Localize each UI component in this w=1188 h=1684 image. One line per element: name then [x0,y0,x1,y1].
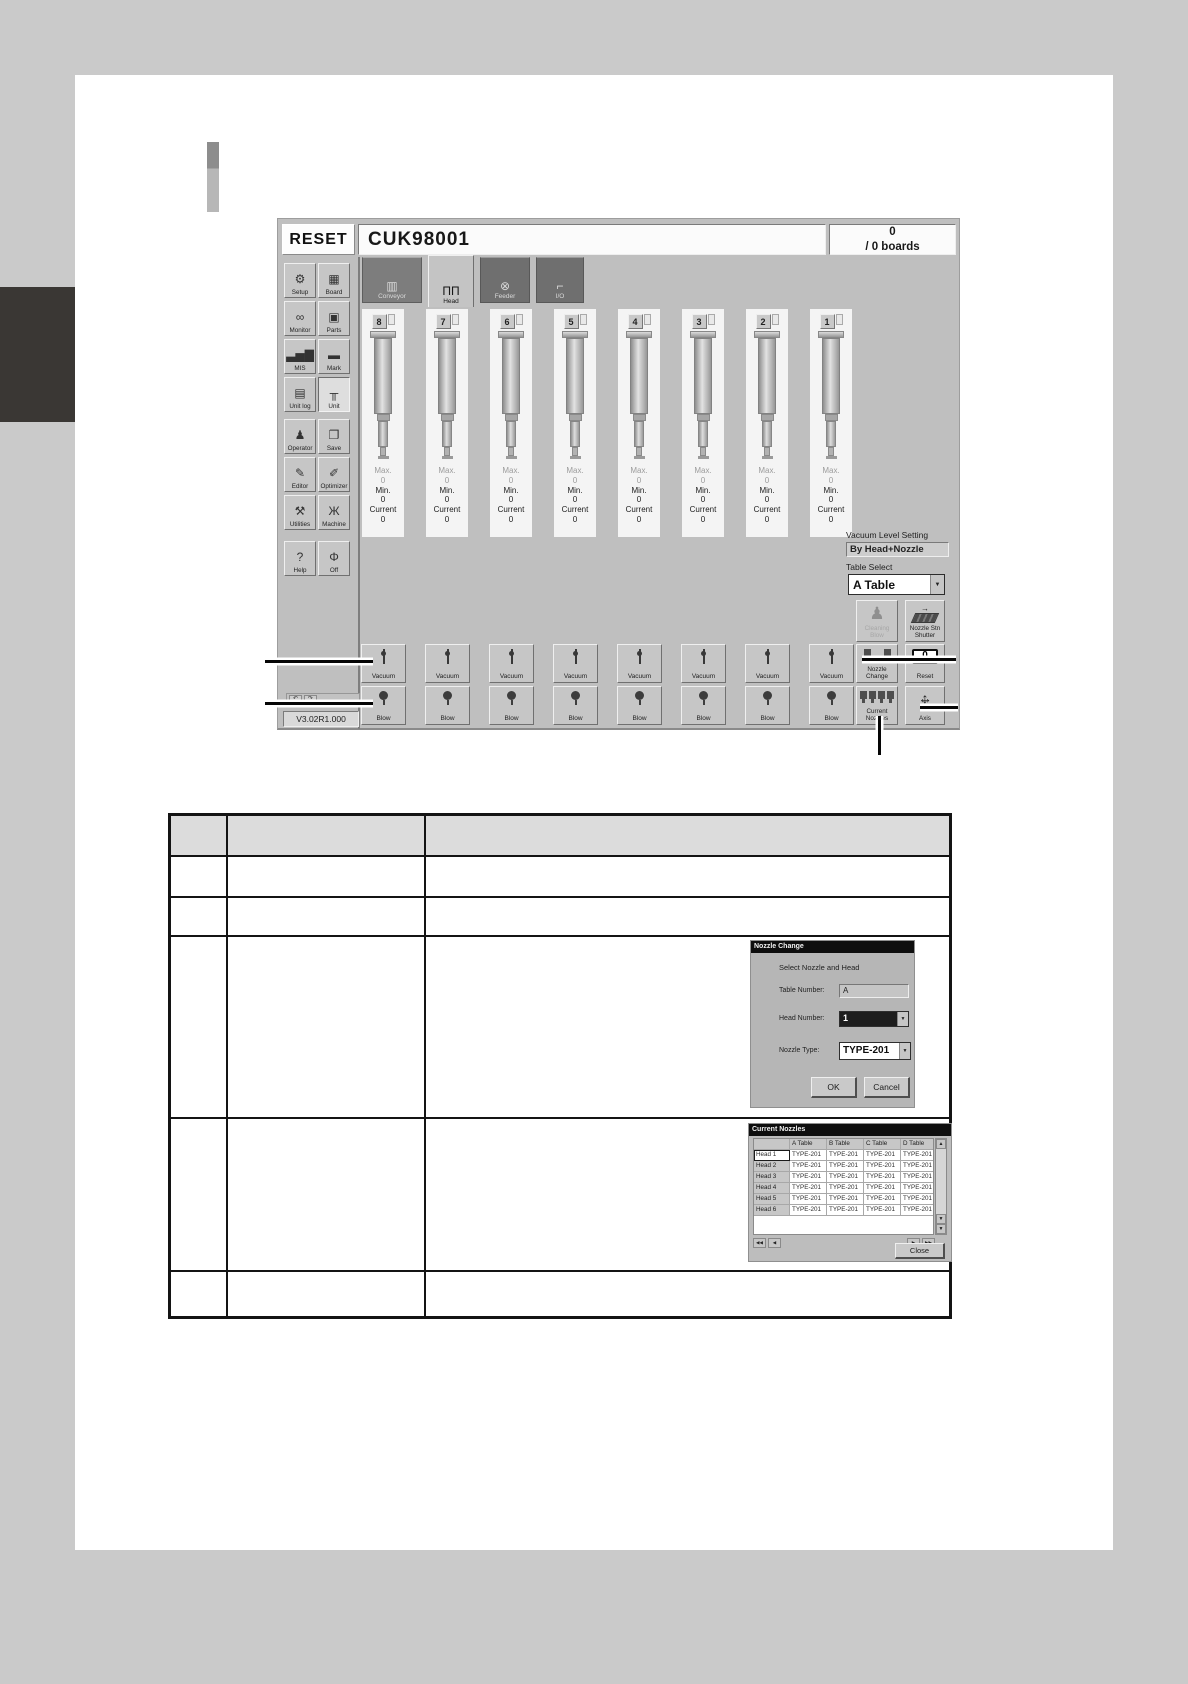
table-cell [228,1119,426,1270]
blow-label: Blow [824,715,838,722]
grid-cell[interactable]: TYPE-201 [864,1183,901,1194]
grid-cell[interactable]: TYPE-201 [827,1205,864,1216]
grid-cell[interactable]: TYPE-201 [827,1172,864,1183]
max-value: 0 [626,476,653,486]
parts-icon: ▣ [328,307,339,327]
blow-button-head-7[interactable]: Blow [425,686,470,725]
nozzle-stn-shutter-button[interactable]: → Nozzle Stn Shutter [905,600,945,642]
grid-cell[interactable]: TYPE-201 [901,1150,934,1161]
table-cell [228,1272,426,1316]
max-label: Max. [370,466,397,476]
vacuum-pin-icon [379,649,389,664]
sidebar-button-board[interactable]: ▦Board [318,263,350,298]
nozzle-change-icon: → [863,649,892,663]
grid-row-header[interactable]: Head 4 [754,1183,790,1194]
current-value: 0 [498,515,525,525]
max-value: 0 [434,476,461,486]
grid-cell[interactable]: TYPE-201 [790,1205,827,1216]
blow-balloon-icon [698,691,709,706]
scroll-left-icon[interactable]: ◀ [768,1238,781,1248]
vacuum-values: Max.0Min.0Current0 [626,466,653,525]
head-strip-1: 1Max.0Min.0Current0 [810,309,852,537]
vacuum-values: Max.0Min.0Current0 [690,466,717,525]
program-title: CUK98001 [358,224,826,255]
min-label: Min. [562,486,589,496]
blow-button-head-3[interactable]: Blow [681,686,726,725]
tab-label: Feeder [495,293,516,300]
cleaning-blow-button[interactable]: ♟ Cleaning Blow [856,600,898,642]
blow-button-head-2[interactable]: Blow [745,686,790,725]
grid-cell[interactable]: TYPE-201 [864,1150,901,1161]
nozzle-graphic [626,331,652,338]
grid-cell[interactable]: TYPE-201 [790,1161,827,1172]
sidebar-button-label: Setup [292,289,308,296]
table-header-row [171,816,949,855]
min-value: 0 [818,495,845,505]
vacuum-button-head-1[interactable]: Vacuum [809,644,854,683]
head-number-badge: 2 [756,314,771,329]
head-number-badge: 7 [436,314,451,329]
vacuum-values: Max.0Min.0Current0 [434,466,461,525]
table-select-dropdown[interactable]: A Table ▼ [848,574,945,595]
blow-balloon-icon [378,691,389,706]
grid-cell[interactable]: TYPE-201 [790,1172,827,1183]
grid-row-header[interactable]: Head 3 [754,1172,790,1183]
board-icon: ▦ [328,269,339,289]
current-value: 0 [818,515,845,525]
arrow-right-icon: → [921,605,929,613]
blow-button-head-4[interactable]: Blow [617,686,662,725]
sidebar-button-label: Monitor [290,327,311,334]
current-nozzles-grid: A TableB TableC TableD TableHead 1TYPE-2… [753,1138,934,1235]
table-cell [171,898,228,935]
max-label: Max. [754,466,781,476]
grid-row: Head 1TYPE-201TYPE-201TYPE-201TYPE-201 [754,1150,933,1161]
sidebar-button-unit[interactable]: ╥Unit [318,377,350,412]
min-label: Min. [434,486,461,496]
grid-row: Head 6TYPE-201TYPE-201TYPE-201TYPE-201 [754,1205,933,1216]
grid-header-row: A TableB TableC TableD Table [754,1139,933,1150]
sidebar-button-editor[interactable]: ✎Editor [284,457,316,492]
current-label: Current [434,505,461,515]
grid-cell[interactable]: TYPE-201 [901,1194,934,1205]
current-value: 0 [370,515,397,525]
grid-cell[interactable]: TYPE-201 [864,1161,901,1172]
min-label: Min. [690,486,717,496]
vacuum-level-setting-label: Vacuum Level Setting [846,530,928,540]
grid-row-header[interactable]: Head 6 [754,1205,790,1216]
current-value: 0 [434,515,461,525]
grid-corner-cell [754,1139,790,1150]
current-label: Current [370,505,397,515]
tab-label: Conveyor [378,293,406,300]
nozzle-graphic [434,331,460,338]
vacuum-label: Vacuum [820,673,843,680]
blow-button-head-8[interactable]: Blow [361,686,406,725]
table-cell [426,898,949,935]
sidebar-button-label: Machine [322,521,346,528]
sidebar-button-label: Utilities [290,521,310,528]
min-label: Min. [754,486,781,496]
scroll-end-icon[interactable]: ▼ [936,1224,946,1234]
grid-column-header: D Table [901,1139,934,1150]
head-number-value: 1 [840,1012,897,1026]
sidebar-button-label: Mark [327,365,341,372]
nozzle-change-dialog: Nozzle Change Select Nozzle and Head Tab… [750,940,915,1108]
close-button[interactable]: Close [895,1243,945,1259]
blow-button-head-1[interactable]: Blow [809,686,854,725]
vacuum-pin-icon [507,649,517,664]
table-cell [228,898,426,935]
grid-row-header[interactable]: Head 5 [754,1194,790,1205]
nozzle-stn-shutter-label: Nozzle Stn Shutter [906,625,944,639]
blow-balloon-icon [570,691,581,706]
head-number-dropdown[interactable]: 1 ▼ [839,1011,909,1027]
head-number-badge: 8 [372,314,387,329]
vacuum-button-head-6[interactable]: Vacuum [489,644,534,683]
current-nozzles-button[interactable]: Current Nozzles [856,686,898,725]
vacuum-values: Max.0Min.0Current0 [818,466,845,525]
current-nozzles-label: Current Nozzles [857,708,897,722]
blow-label: Blow [760,715,774,722]
sidebar-button-label: Off [330,567,338,574]
current-value: 0 [754,515,781,525]
blow-balloon-icon [442,691,453,706]
max-label: Max. [818,466,845,476]
head-number-label: Head Number: [779,1015,825,1022]
grid-cell[interactable]: TYPE-201 [827,1150,864,1161]
grid-row-header[interactable]: Head 1 [754,1150,790,1161]
vacuum-pin-icon [571,649,581,664]
sidebar-button-label: Help [294,567,307,574]
current-label: Current [562,505,589,515]
vacuum-label: Vacuum [692,673,715,680]
sidebar-button-label: Save [327,445,341,452]
grid-cell[interactable]: TYPE-201 [901,1183,934,1194]
tab-i-o[interactable]: ⌐I/O [536,257,584,303]
grid-cell[interactable]: TYPE-201 [790,1183,827,1194]
operator-icon: ♟ [295,425,306,445]
grid-row: Head 2TYPE-201TYPE-201TYPE-201TYPE-201 [754,1161,933,1172]
unit-icon: ╥ [330,383,339,403]
sidebar-button-utilities[interactable]: ⚒Utilities [284,495,316,530]
vacuum-label: Vacuum [564,673,587,680]
setup-icon: ⚙ [295,269,306,289]
max-label: Max. [626,466,653,476]
ok-button[interactable]: OK [811,1077,857,1098]
nozzle-graphic [370,331,396,338]
grid-cell[interactable]: TYPE-201 [901,1172,934,1183]
grid-row: Head 4TYPE-201TYPE-201TYPE-201TYPE-201 [754,1183,933,1194]
table-header-cell [426,816,949,855]
nozzle-change-button[interactable]: → Nozzle Change [856,644,898,683]
vacuum-label: Vacuum [372,673,395,680]
sidebar-button-off[interactable]: ΦOff [318,541,350,576]
table-cell [426,857,949,896]
sidebar-button-save[interactable]: ❐Save [318,419,350,454]
save-icon: ❐ [329,425,340,445]
max-label: Max. [498,466,525,476]
nozzle-graphic [690,331,716,338]
vacuum-values: Max.0Min.0Current0 [498,466,525,525]
scroll-up-icon[interactable]: ▲ [936,1139,946,1149]
mis-icon: ▃▅▇ [286,345,314,365]
nozzle-change-label: Nozzle Change [857,666,897,680]
min-label: Min. [498,486,525,496]
table-number-field: A [839,984,909,998]
tab-label: Head [443,298,459,305]
operator-silhouette-icon: ♟ [869,605,884,623]
min-label: Min. [370,486,397,496]
min-value: 0 [562,495,589,505]
document-page: RESET CUK98001 0 / 0 boards ⚙Setup▦Board… [0,0,1188,1684]
axis-label: Axis [919,715,931,722]
sidebar-button-parts[interactable]: ▣Parts [318,301,350,336]
machine-ui-screenshot: RESET CUK98001 0 / 0 boards ⚙Setup▦Board… [277,218,960,730]
grid-column-header: C Table [864,1139,901,1150]
window-titlebar: Current Nozzles [749,1124,951,1136]
table-cell [228,937,426,1117]
shutter-icon: → [913,605,937,623]
help-icon: ? [297,547,304,567]
blow-label: Blow [376,715,390,722]
vacuum-pin-icon [443,649,453,664]
software-version: V3.02R1.000 [283,711,359,727]
min-label: Min. [626,486,653,496]
vacuum-values: Max.0Min.0Current0 [754,466,781,525]
nozzle-graphic [818,331,844,338]
sidebar-button-label: Unit log [289,403,310,410]
current-label: Current [818,505,845,515]
head-strip-3: 3Max.0Min.0Current0 [682,309,724,537]
table-cell [171,937,228,1117]
vacuum-button-head-3[interactable]: Vacuum [681,644,726,683]
nozzle-type-value: TYPE-201 [840,1043,899,1059]
utilities-icon: ⚒ [295,501,306,521]
tab-head[interactable]: ΠΠHead [428,255,474,307]
table-select-value: A Table [849,578,930,592]
max-value: 0 [370,476,397,486]
vacuum-values: Max.0Min.0Current0 [562,466,589,525]
vertical-scrollbar[interactable]: ▲ ▼ ▼ [935,1138,947,1235]
editor-icon: ✎ [295,463,305,483]
table-cell [171,857,228,896]
min-value: 0 [434,495,461,505]
table-number-label: Table Number: [779,987,825,994]
head-number-badge: 3 [692,314,707,329]
chevron-down-icon[interactable]: ▼ [899,1043,910,1059]
blow-label: Blow [696,715,710,722]
max-value: 0 [818,476,845,486]
table-row [171,855,949,896]
min-value: 0 [626,495,653,505]
max-label: Max. [690,466,717,476]
grid-column-header: B Table [827,1139,864,1150]
tab-feeder[interactable]: ⊗Feeder [480,257,530,303]
chevron-down-icon[interactable]: ▼ [930,575,944,594]
grid-cell[interactable]: TYPE-201 [827,1183,864,1194]
unit-log-icon: ▤ [294,383,305,403]
grid-cell[interactable]: TYPE-201 [864,1172,901,1183]
max-label: Max. [434,466,461,476]
cleaning-blow-label: Cleaning Blow [857,625,897,639]
head-icon: ΠΠ [442,284,459,298]
min-label: Min. [818,486,845,496]
nozzle-graphic [754,331,780,338]
max-value: 0 [562,476,589,486]
head-number-badge: 6 [500,314,515,329]
scroll-down-icon[interactable]: ▼ [936,1214,946,1224]
sidebar-button-label: Optimizer [321,483,348,490]
blow-label: Blow [632,715,646,722]
sidebar-button-machine[interactable]: ЖMachine [318,495,350,530]
dialog-subtitle: Select Nozzle and Head [779,963,859,972]
vacuum-level-setting-value: By Head+Nozzle [846,542,949,557]
blow-balloon-icon [826,691,837,706]
vacuum-pin-icon [763,649,773,664]
tab-conveyor[interactable]: ▥Conveyor [362,257,422,303]
head-strip-7: 7Max.0Min.0Current0 [426,309,468,537]
grid-cell[interactable]: TYPE-201 [827,1161,864,1172]
table-row [171,1270,949,1316]
cancel-button[interactable]: Cancel [864,1077,910,1098]
table-cell [228,857,426,896]
vacuum-button-head-8[interactable]: Vacuum [361,644,406,683]
table-cell [171,1119,228,1270]
sidebar-button-label: Editor [292,483,308,490]
current-label: Current [498,505,525,515]
reset-button[interactable]: RESET [282,224,355,255]
current-label: Current [754,505,781,515]
sidebar-button-operator[interactable]: ♟Operator [284,419,316,454]
vacuum-button-head-5[interactable]: Vacuum [553,644,598,683]
head-number-badge: 4 [628,314,643,329]
min-value: 0 [754,495,781,505]
mark-icon: ▬ [328,345,340,365]
min-value: 0 [498,495,525,505]
blow-button-head-5[interactable]: Blow [553,686,598,725]
vacuum-button-head-4[interactable]: Vacuum [617,644,662,683]
table-header-cell [171,816,228,855]
vacuum-label: Vacuum [756,673,779,680]
optimizer-icon: ✐ [329,463,339,483]
chevron-down-icon[interactable]: ▼ [897,1012,908,1026]
io-icon: ⌐ [556,279,563,293]
grid-cell[interactable]: TYPE-201 [790,1150,827,1161]
table-cell [426,1272,949,1316]
callout-line-nozzle-change [862,658,956,661]
head-number-badge: 1 [820,314,835,329]
callout-line-vacuum [265,660,373,663]
current-label: Current [690,505,717,515]
sidebar-button-label: Board [326,289,343,296]
reset-counter-label: Reset [917,673,933,680]
head-strip-6: 6Max.0Min.0Current0 [490,309,532,537]
board-counter: 0 / 0 boards [829,224,956,255]
nozzle-type-dropdown[interactable]: TYPE-201 ▼ [839,1042,911,1060]
current-nozzles-icon [859,691,895,705]
grid-cell[interactable]: TYPE-201 [864,1194,901,1205]
sidebar-button-optimizer[interactable]: ✐Optimizer [318,457,350,492]
vacuum-pin-icon [827,649,837,664]
sidebar-button-mark[interactable]: ▬Mark [318,339,350,374]
max-value: 0 [754,476,781,486]
sidebar-button-monitor[interactable]: ∞Monitor [284,301,316,336]
grid-cell[interactable]: TYPE-201 [901,1205,934,1216]
tab-label: I/O [556,293,565,300]
scroll-left-end-icon[interactable]: ◀◀ [753,1238,766,1248]
current-label: Current [626,505,653,515]
grid-cell[interactable]: TYPE-201 [827,1194,864,1205]
board-count-label: / 0 boards [865,240,919,254]
max-value: 0 [498,476,525,486]
blow-label: Blow [568,715,582,722]
grid-cell[interactable]: TYPE-201 [790,1194,827,1205]
head-strip-5: 5Max.0Min.0Current0 [554,309,596,537]
grid-row-header[interactable]: Head 2 [754,1161,790,1172]
table-header-cell [228,816,426,855]
head-number-badge: 5 [564,314,579,329]
blow-balloon-icon [762,691,773,706]
callout-line-axis [920,706,958,709]
callout-line-current-nozzles [878,716,881,755]
blow-label: Blow [504,715,518,722]
current-value: 0 [626,515,653,525]
sidebar-button-label: Operator [288,445,313,452]
vacuum-label: Vacuum [436,673,459,680]
vacuum-label: Vacuum [500,673,523,680]
off-icon: Φ [329,547,339,567]
vacuum-button-head-2[interactable]: Vacuum [745,644,790,683]
table-row [171,896,949,935]
grid-row: Head 3TYPE-201TYPE-201TYPE-201TYPE-201 [754,1172,933,1183]
monitor-icon: ∞ [296,307,305,327]
dialog-titlebar: Nozzle Change [751,941,914,953]
grid-cell[interactable]: TYPE-201 [864,1205,901,1216]
sidebar-button-mis[interactable]: ▃▅▇MIS [284,339,316,374]
vacuum-button-head-7[interactable]: Vacuum [425,644,470,683]
blow-button-head-6[interactable]: Blow [489,686,534,725]
sidebar-button-setup[interactable]: ⚙Setup [284,263,316,298]
sidebar-divider [358,257,360,729]
reset-counter-button[interactable]: 0 Reset [905,644,945,683]
sidebar-button-unit-log[interactable]: ▤Unit log [284,377,316,412]
grid-cell[interactable]: TYPE-201 [901,1161,934,1172]
current-nozzles-window: Current Nozzles A TableB TableC TableD T… [748,1123,952,1262]
current-value: 0 [562,515,589,525]
machine-icon: Ж [328,501,339,521]
zero-icon: 0 [912,649,938,664]
vacuum-values: Max.0Min.0Current0 [370,466,397,525]
min-value: 0 [690,495,717,505]
sidebar-button-help[interactable]: ?Help [284,541,316,576]
vacuum-label: Vacuum [628,673,651,680]
sidebar-button-label: Unit [328,403,339,410]
sidebar-button-label: Parts [327,327,342,334]
conveyor-icon: ▥ [386,279,397,293]
nozzle-type-label: Nozzle Type: [779,1047,819,1054]
blow-label: Blow [440,715,454,722]
grid-column-header: A Table [790,1139,827,1150]
min-value: 0 [370,495,397,505]
grid-row: Head 5TYPE-201TYPE-201TYPE-201TYPE-201 [754,1194,933,1205]
callout-line-blow [265,702,373,705]
chapter-edge-tab [0,287,75,422]
max-value: 0 [690,476,717,486]
feeder-icon: ⊗ [500,279,510,293]
max-label: Max. [562,466,589,476]
table-cell [171,1272,228,1316]
